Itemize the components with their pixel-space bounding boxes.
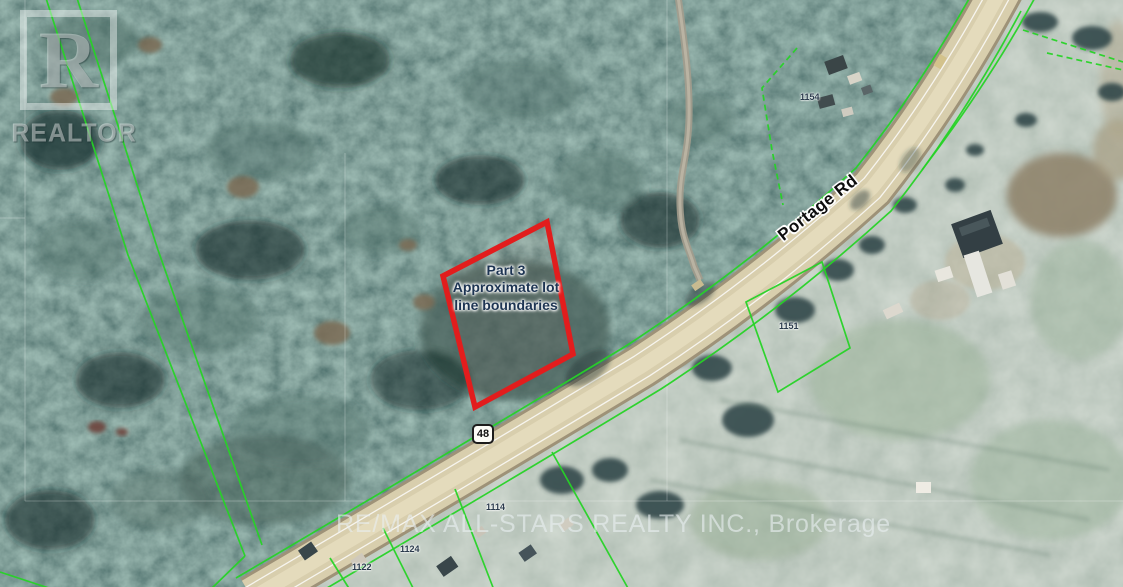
listing-map-image: R REALTOR Part 3 Approximate lot line bo…	[0, 0, 1123, 587]
field-shed	[916, 482, 931, 493]
aerial-satellite-layer	[0, 0, 1123, 587]
